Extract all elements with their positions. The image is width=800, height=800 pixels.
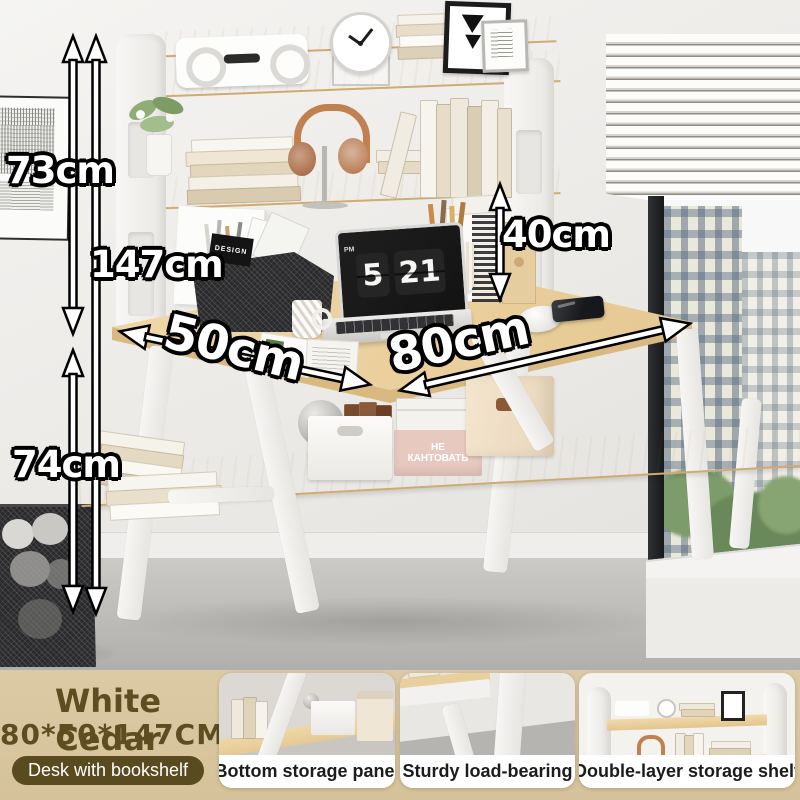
shelf-clearance-label: 40cm bbox=[502, 213, 610, 256]
product-tag-wrap: Desk with bookshelf bbox=[0, 756, 216, 785]
product-size: 80*50*147CM bbox=[0, 718, 216, 751]
thumb-frame bbox=[721, 691, 745, 721]
hutch-height-label: 73cm bbox=[6, 149, 114, 192]
feature-card-double-shelf: Double-layer storage shelf bbox=[579, 673, 795, 788]
feature-label-bottom-storage: Bottom storage panel bbox=[219, 755, 395, 788]
product-info-block: White Cedar 80*50*147CM Desk with booksh… bbox=[0, 670, 216, 800]
thumb-beige-box bbox=[357, 691, 393, 741]
total-height-label: 147cm bbox=[90, 243, 223, 286]
feature-card-bottom-storage: Bottom storage panel bbox=[219, 673, 395, 788]
feature-label-load-bearing: Sturdy load-bearing bbox=[400, 755, 575, 788]
thumb-speaker bbox=[615, 701, 649, 716]
product-tag-badge: Desk with bookshelf bbox=[12, 756, 204, 785]
product-image: НЕ КАНТОВАТЬ DESIGN PM 5 21 bbox=[0, 0, 800, 800]
thumb-book-6 bbox=[681, 709, 715, 717]
footer-bar: White Cedar 80*50*147CM Desk with booksh… bbox=[0, 670, 800, 800]
feature-label-double-shelf: Double-layer storage shelf bbox=[579, 755, 795, 788]
feature-card-load-bearing: Sturdy load-bearing bbox=[400, 673, 575, 788]
thumb-clock bbox=[657, 699, 676, 718]
thumb-headphones bbox=[637, 735, 665, 757]
thumb-white-box bbox=[311, 701, 355, 735]
desk-height-label: 74cm bbox=[12, 443, 120, 486]
arrow-147cm bbox=[86, 36, 106, 614]
